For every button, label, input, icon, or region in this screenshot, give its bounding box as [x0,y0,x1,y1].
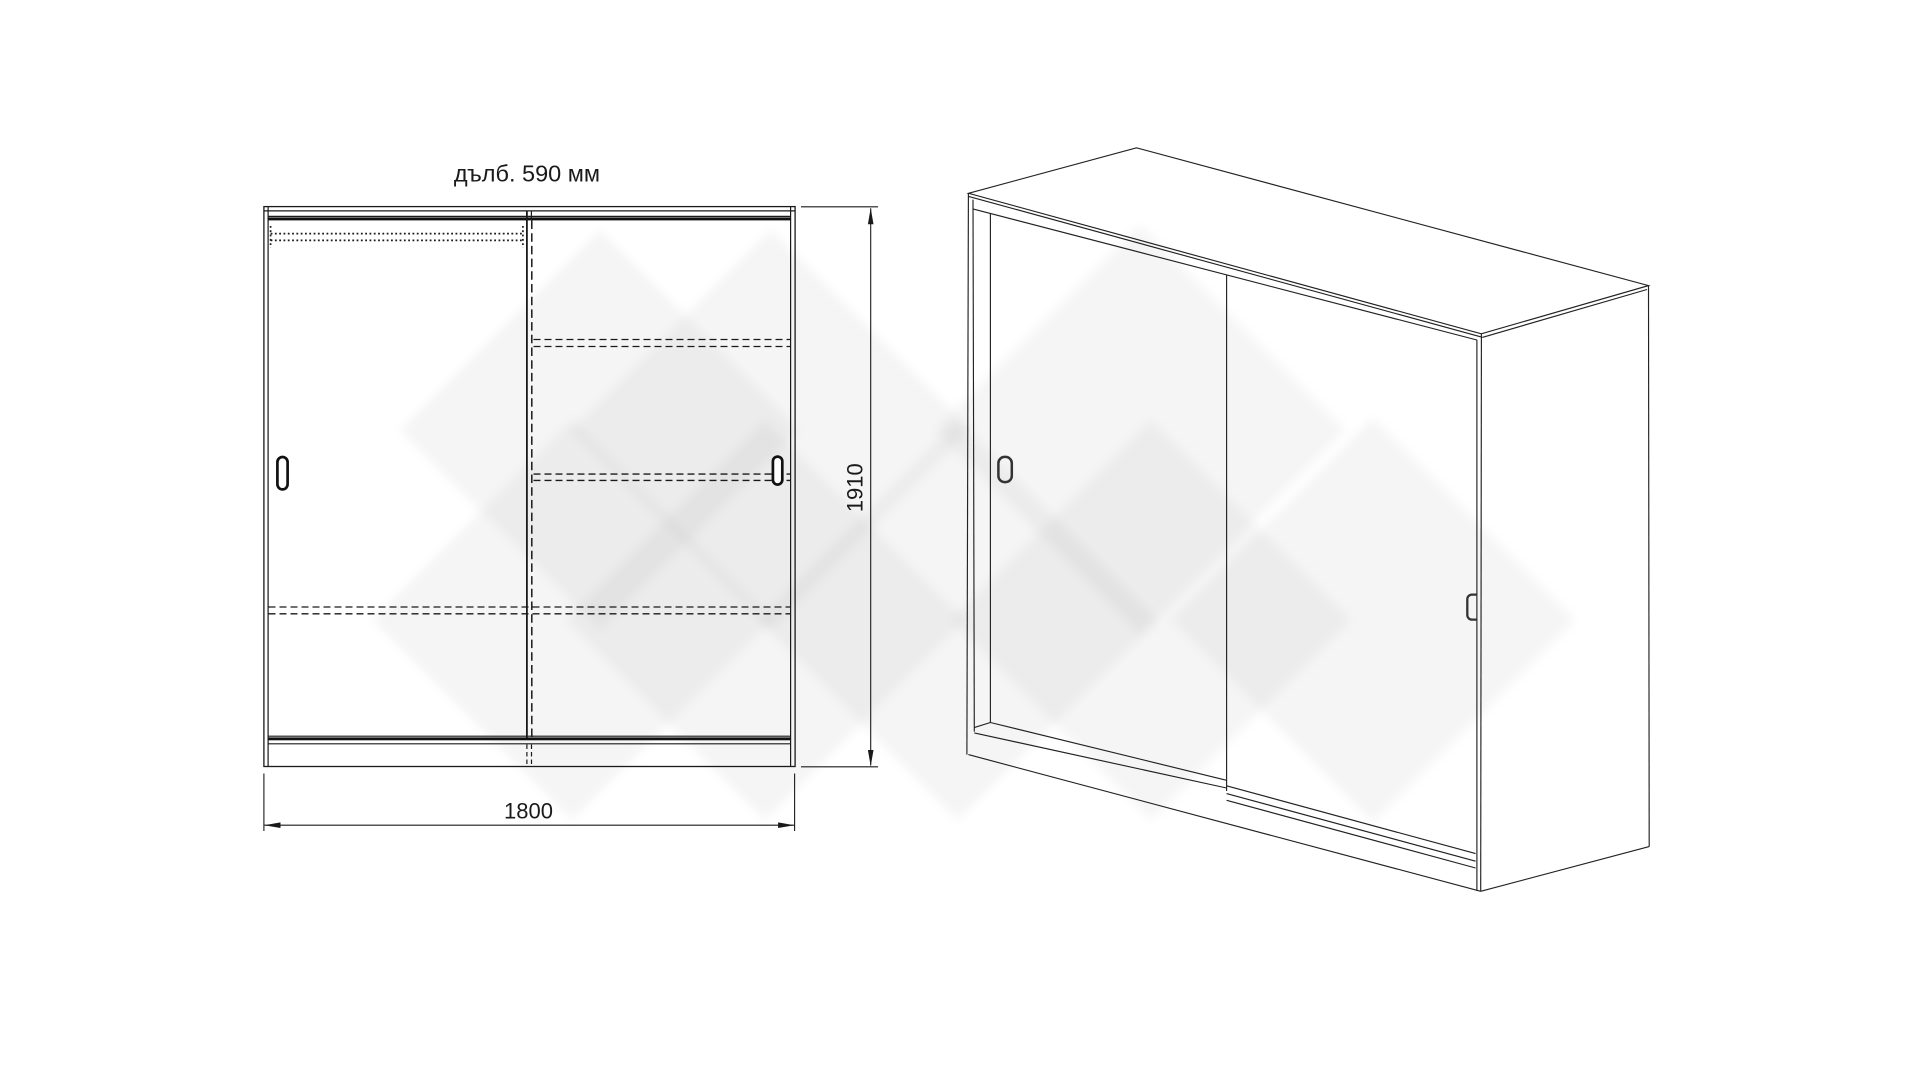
svg-text:1800: 1800 [504,799,553,824]
svg-text:дълб. 590 мм: дълб. 590 мм [454,161,600,187]
svg-text:1910: 1910 [843,463,868,512]
